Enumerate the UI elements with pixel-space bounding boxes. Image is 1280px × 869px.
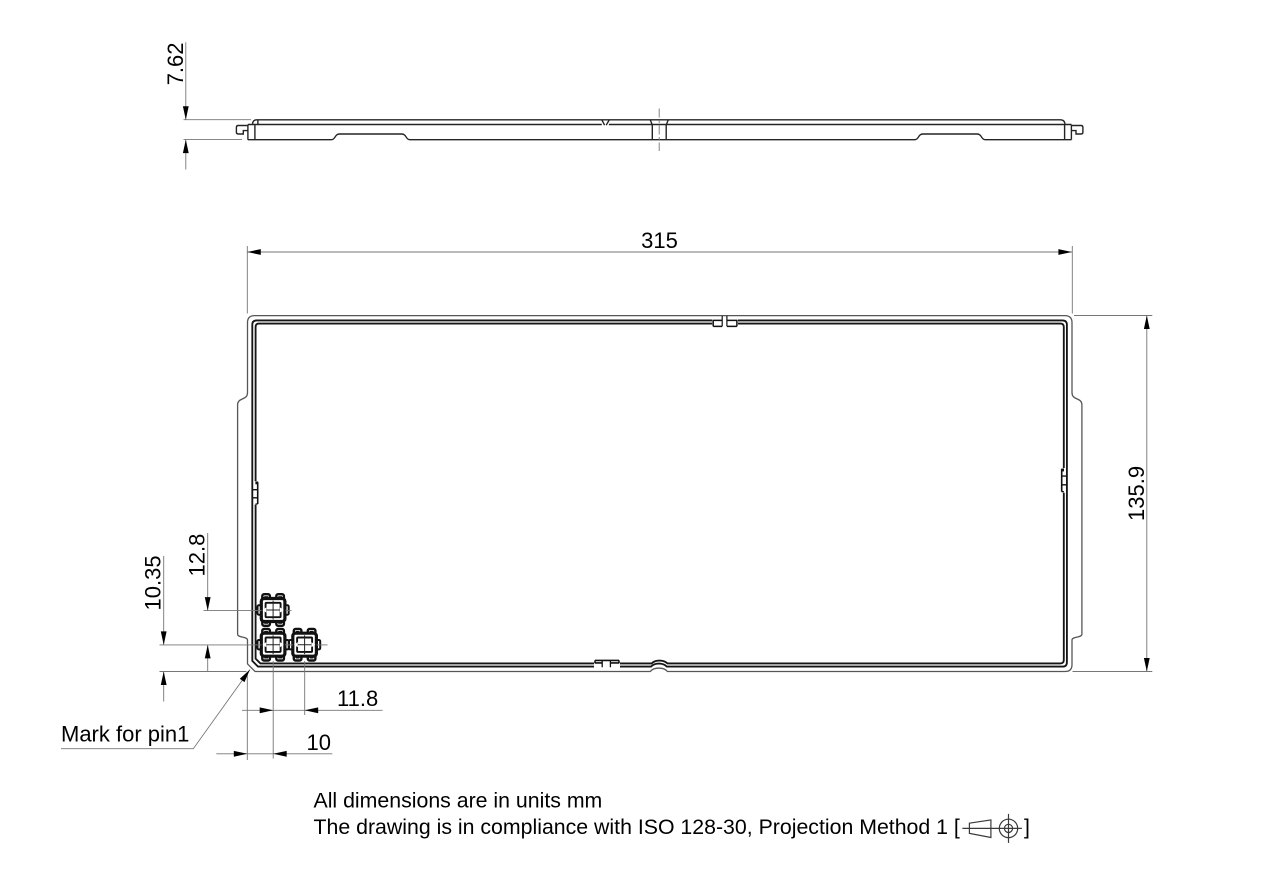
svg-text:135.9: 135.9 (1124, 466, 1149, 521)
svg-text:315: 315 (641, 228, 678, 253)
svg-text:10: 10 (307, 730, 331, 755)
svg-text:11.8: 11.8 (337, 686, 378, 711)
svg-text:10.35: 10.35 (141, 555, 166, 610)
svg-text:Mark for pin1: Mark for pin1 (61, 722, 189, 747)
svg-text:7.62: 7.62 (163, 42, 188, 85)
svg-text:All dimensions are in units mm: All dimensions are in units mm (314, 789, 603, 813)
svg-text:]: ] (1024, 815, 1030, 839)
svg-text:12.8: 12.8 (185, 534, 210, 577)
svg-text:The drawing is in compliance w: The drawing is in compliance with ISO 12… (314, 815, 960, 839)
